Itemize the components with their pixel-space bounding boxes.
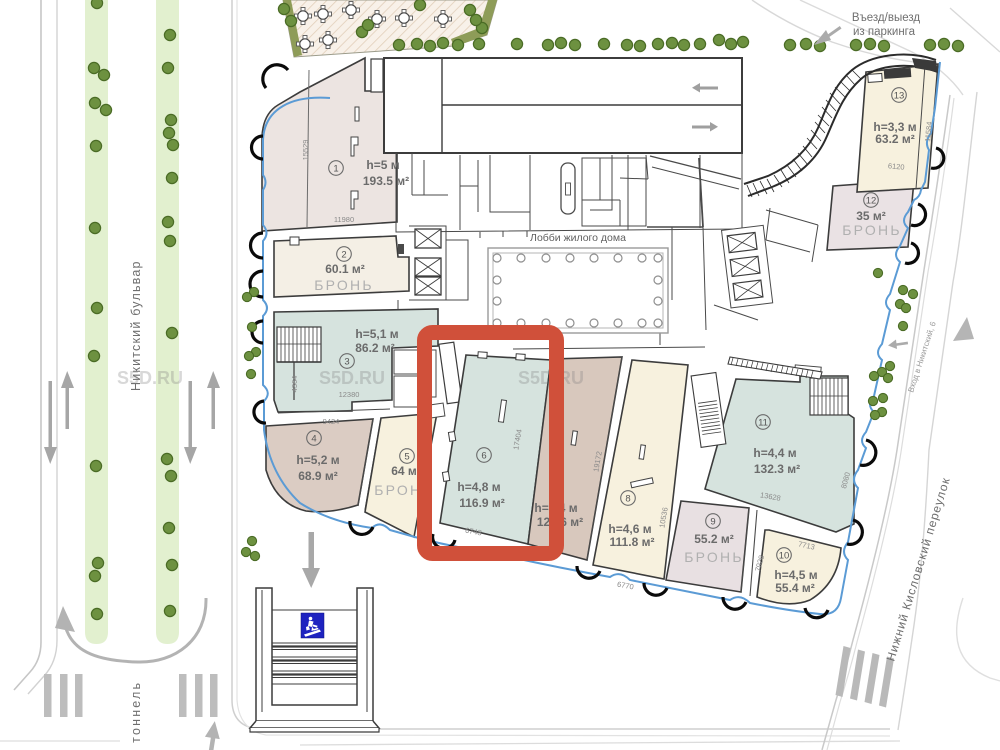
svg-text:10: 10 (779, 551, 790, 562)
svg-text:h=4,5 м: h=4,5 м (774, 568, 817, 582)
svg-text:86.2 м²: 86.2 м² (355, 341, 395, 355)
svg-text:11: 11 (758, 418, 768, 429)
svg-text:h=5,2 м: h=5,2 м (296, 453, 339, 467)
svg-text:132.3 м²: 132.3 м² (754, 462, 800, 476)
svg-text:12380: 12380 (339, 390, 360, 399)
svg-text:3: 3 (344, 357, 349, 368)
svg-text:60.1 м²: 60.1 м² (325, 262, 365, 276)
svg-text:13: 13 (894, 91, 905, 102)
svg-text:63.2 м²: 63.2 м² (875, 132, 915, 146)
svg-text:8: 8 (625, 494, 630, 505)
svg-text:11584: 11584 (923, 121, 934, 142)
svg-text:h=4,4 м: h=4,4 м (753, 446, 796, 460)
svg-text:2: 2 (341, 250, 346, 261)
svg-text:Лобби жилого дома: Лобби жилого дома (530, 232, 626, 244)
svg-text:111.8 м²: 111.8 м² (610, 535, 655, 549)
svg-text:БРОНЬ: БРОНЬ (842, 222, 901, 238)
svg-text:6120: 6120 (888, 161, 905, 171)
svg-text:БРОНЬ: БРОНЬ (684, 549, 743, 565)
svg-text:116.9 м²: 116.9 м² (459, 496, 505, 510)
svg-text:S5D.RU: S5D.RU (117, 368, 183, 388)
svg-text:35 м²: 35 м² (856, 209, 886, 223)
svg-text:6: 6 (481, 451, 486, 462)
svg-text:55.4 м²: 55.4 м² (775, 581, 815, 595)
svg-text:h=4,8 м: h=4,8 м (457, 480, 500, 494)
svg-text:БРОНЬ: БРОНЬ (314, 277, 373, 293)
svg-text:h=5,1 м: h=5,1 м (355, 327, 398, 341)
svg-text:5: 5 (404, 452, 409, 463)
svg-text:ский тоннель: ский тоннель (129, 681, 143, 750)
svg-text:193.5 м²: 193.5 м² (363, 174, 409, 188)
svg-text:68.9 м²: 68.9 м² (298, 469, 338, 483)
svg-text:h=4,6 м: h=4,6 м (608, 522, 651, 536)
svg-text:12: 12 (866, 196, 877, 207)
svg-text:1: 1 (333, 164, 338, 175)
svg-text:4: 4 (311, 434, 316, 445)
svg-text:64 м²: 64 м² (391, 464, 421, 478)
svg-text:11980: 11980 (334, 215, 354, 224)
svg-text:4364: 4364 (290, 376, 299, 393)
svg-text:15529: 15529 (301, 140, 310, 161)
svg-text:9424: 9424 (323, 417, 340, 426)
svg-text:S5D.RU: S5D.RU (319, 368, 385, 388)
svg-text:9: 9 (710, 517, 715, 528)
svg-text:Въезд/выезд: Въезд/выезд (852, 12, 920, 24)
svg-text:из паркинга: из паркинга (853, 26, 916, 38)
svg-text:h=5 м: h=5 м (366, 158, 399, 172)
svg-text:55.2 м²: 55.2 м² (694, 532, 734, 546)
